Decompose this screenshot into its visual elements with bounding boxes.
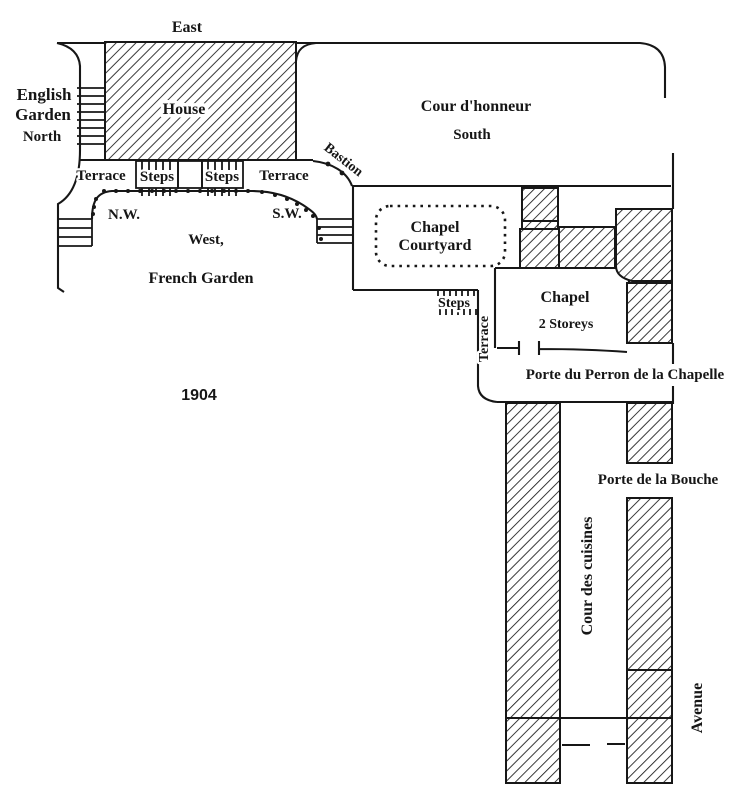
label-house: House <box>163 101 206 118</box>
label-english-garden-1: English <box>17 85 72 104</box>
label-avenue: Avenue <box>689 683 706 733</box>
label-english-garden-2: Garden <box>15 105 71 124</box>
label-cour-honneur: Cour d'honneur <box>421 98 531 115</box>
label-porte-bouche: Porte de la Bouche <box>598 472 719 488</box>
label-terrace-right: Terrace <box>259 168 309 184</box>
label-year: 1904 <box>181 387 217 404</box>
label-sw: S.W. <box>272 206 302 222</box>
label-terrace-left: Terrace <box>76 168 126 184</box>
label-cour-cuisines: Cour des cuisines <box>579 517 596 636</box>
label-north: North <box>23 129 62 145</box>
label-chapel: Chapel <box>541 289 590 306</box>
site-plan-drawing: East English Garden North House Cour d'h… <box>0 0 751 798</box>
label-french-garden: French Garden <box>148 270 253 287</box>
english-garden-steps <box>77 88 105 144</box>
label-chapel-courtyard-1: Chapel <box>411 219 460 236</box>
corridor-marks <box>560 718 627 745</box>
label-nw: N.W. <box>108 207 140 223</box>
label-steps-left: Steps <box>140 169 174 185</box>
label-west: West, <box>188 232 224 248</box>
label-east: East <box>172 19 203 36</box>
site-plan-page: East English Garden North House Cour d'h… <box>0 0 751 798</box>
label-chapel-courtyard-2: Courtyard <box>399 237 472 254</box>
label-steps-right: Steps <box>205 169 239 185</box>
label-south: South <box>453 127 491 143</box>
label-steps-chapel: Steps <box>438 296 470 311</box>
label-porte-perron: Porte du Perron de la Chapelle <box>526 367 725 383</box>
label-chapel-storeys: 2 Storeys <box>539 317 594 332</box>
label-terrace-chapel: Terrace <box>477 316 492 362</box>
